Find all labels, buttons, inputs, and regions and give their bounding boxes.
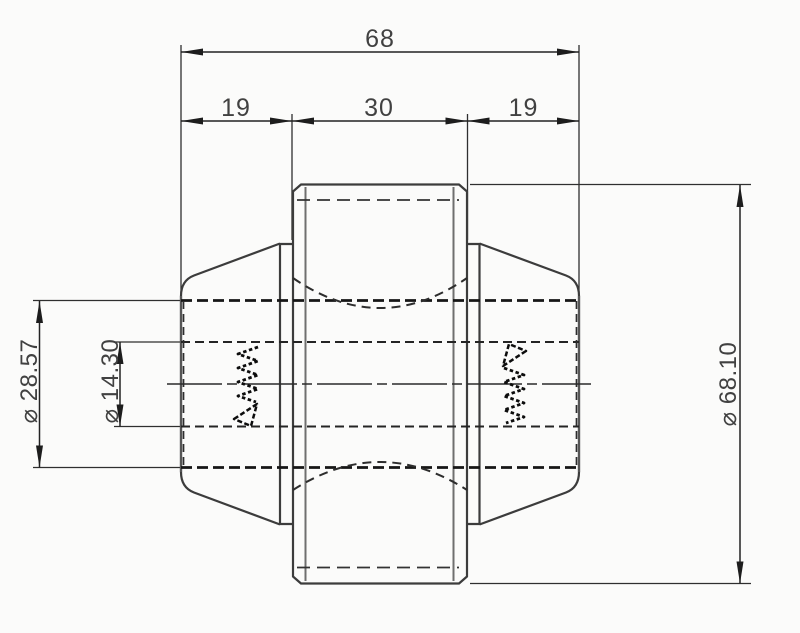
dimension-value-overall: 68 xyxy=(365,25,395,53)
extension-lines xyxy=(33,45,751,584)
dimension-value-right-section: 19 xyxy=(509,94,539,122)
dimension-value-outer-diameter: ⌀ 68.10 xyxy=(715,342,742,427)
arrowhead-up-icon xyxy=(36,301,43,323)
dimension-right-section: 19 xyxy=(468,94,580,125)
dimension-left-section: 19 xyxy=(181,94,292,125)
arrowhead-left-icon xyxy=(181,49,203,56)
dimension-hub-diameter: ⌀ 28.57 xyxy=(16,301,43,468)
dimension-overall-length: 68 xyxy=(181,25,579,56)
bearing-zigzag xyxy=(504,368,524,423)
arrowhead-right-icon xyxy=(270,118,292,125)
arrowhead-down-icon xyxy=(36,446,43,468)
dimension-bore-diameter: ⌀ 14.30 xyxy=(97,339,124,427)
bearing-hatch-left xyxy=(234,347,258,426)
arrowhead-right-icon xyxy=(557,118,579,125)
arrowhead-right-icon xyxy=(446,118,468,125)
dimension-value-bore-diameter: ⌀ 14.30 xyxy=(97,339,124,424)
technical-drawing-page: 68 19 30 19 ⌀ 28.57 ⌀ 14.30 ⌀ 68 xyxy=(0,0,800,633)
arrowhead-left-icon xyxy=(468,118,490,125)
bearing-triangle xyxy=(503,344,526,366)
bearing-triangle xyxy=(234,404,257,426)
bearing-zigzag xyxy=(238,347,258,402)
technical-drawing-canvas: 68 19 30 19 ⌀ 28.57 ⌀ 14.30 ⌀ 68 xyxy=(0,0,800,633)
arrowhead-left-icon xyxy=(292,118,314,125)
part-section-view xyxy=(167,185,591,584)
arrowhead-down-icon xyxy=(737,562,744,584)
dimension-value-left-section: 19 xyxy=(221,94,251,122)
arrowhead-left-icon xyxy=(181,118,203,125)
dimension-center-section: 30 xyxy=(292,94,468,125)
arrowhead-right-icon xyxy=(557,49,579,56)
arrowhead-up-icon xyxy=(737,185,744,207)
dimension-outer-diameter: ⌀ 68.10 xyxy=(715,185,744,584)
hidden-arc-top xyxy=(293,278,467,308)
dimension-value-hub-diameter: ⌀ 28.57 xyxy=(16,339,43,424)
dimension-value-center-section: 30 xyxy=(364,94,394,122)
